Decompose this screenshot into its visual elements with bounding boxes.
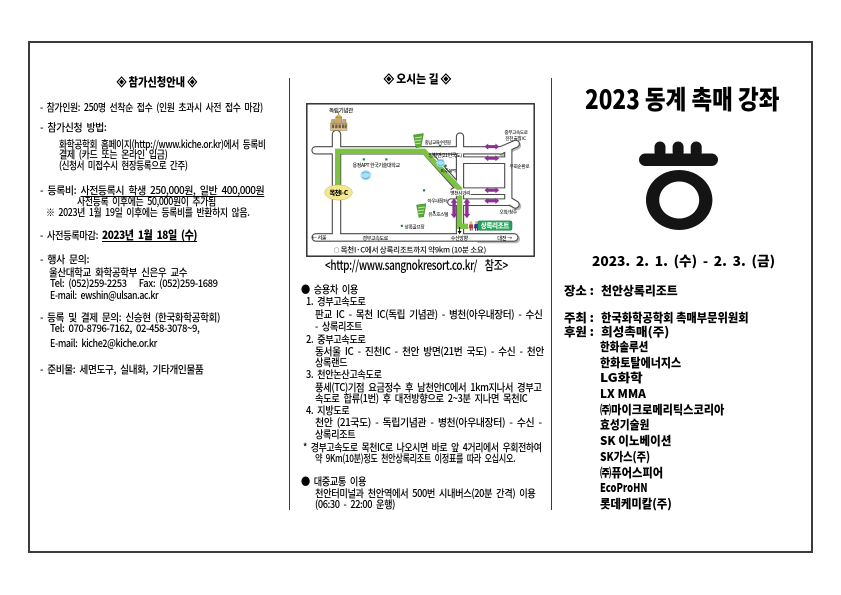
svg-text:수신방향: 수신방향 (451, 235, 469, 242)
svg-text:상록골프장: 상록골프장 (405, 223, 426, 230)
svg-text:대전 →: 대전 → (497, 234, 512, 242)
svg-text:병천사거리: 병천사거리 (450, 190, 470, 197)
svg-text:충남교육수련원: 충남교육수련원 (425, 139, 451, 146)
svg-text:아우내장터: 아우내장터 (428, 198, 448, 205)
svg-text:진천 출발 IC: 진천 출발 IC (505, 135, 526, 142)
svg-text:경부고속도로: 경부고속도로 (363, 235, 389, 242)
svg-text:오창/청주: 오창/청주 (500, 209, 518, 215)
svg-text:상록리조트: 상록리조트 (481, 220, 510, 230)
svg-text:← 서울: ← 서울 (312, 234, 327, 242)
svg-text:미주APT: 미주APT (441, 168, 457, 175)
svg-text:병천면(21번국도): 병천면(21번국도) (429, 152, 463, 159)
svg-text:유스호스텔: 유스호스텔 (428, 211, 448, 218)
svg-text:목천I·C: 목천I·C (330, 188, 349, 197)
svg-text:용정APT 한국기술대학교: 용정APT 한국기술대학교 (353, 162, 401, 169)
svg-text:우회순환로: 우회순환로 (510, 163, 531, 170)
svg-text:독립기념관: 독립기념관 (329, 107, 353, 115)
